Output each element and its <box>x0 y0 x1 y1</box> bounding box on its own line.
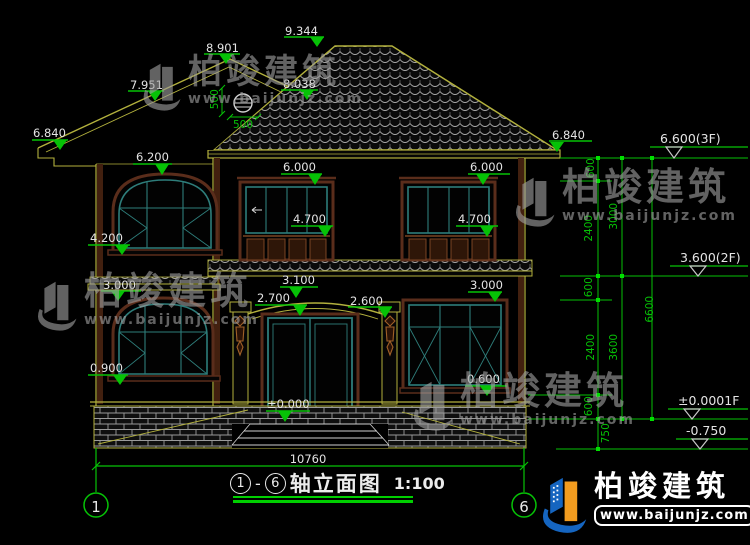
pent-roof-band <box>208 260 532 276</box>
dim-2400-b: 2400 <box>586 327 597 367</box>
company-url: www.baijunjz.com <box>594 505 750 526</box>
title-dash: - <box>255 474 261 493</box>
elev-4700-right: 4.700 <box>458 214 491 226</box>
elev-4700-left: 4.700 <box>293 214 326 226</box>
elev-7951: 7.951 <box>130 80 163 92</box>
entry-steps <box>232 424 389 448</box>
title-axis-start: 1 <box>230 473 251 494</box>
elev-3100: 3.100 <box>282 275 315 287</box>
dim-500-vertical: 500 <box>210 79 221 119</box>
datum-3f: 6.600(3F) <box>660 133 721 146</box>
datum-2f: 3.600(2F) <box>680 252 741 265</box>
window-2f-arched <box>108 174 222 255</box>
elev-3000-right: 3.000 <box>470 280 503 292</box>
title-scale: 1:100 <box>394 474 445 493</box>
company-name: 柏竣建筑 <box>594 472 750 501</box>
dim-600-a: 600 <box>586 148 597 188</box>
elevation-drawing-canvas: 9.344 8.901 7.951 8.038 6.840 6.840 6.20… <box>0 0 750 545</box>
elev-9344: 9.344 <box>285 26 318 38</box>
elev-6000-left: 6.000 <box>283 162 316 174</box>
elev-6840-right: 6.840 <box>552 130 585 142</box>
axis-bubble-1: 1 <box>84 498 108 516</box>
elev-2700: 2.700 <box>257 293 290 305</box>
elev-6200: 6.200 <box>136 152 169 164</box>
dim-total-width: 10760 <box>286 454 330 466</box>
elev-0900: 0.900 <box>90 363 123 375</box>
datum-ground: -0.750 <box>686 425 726 438</box>
title-text: 轴立面图 <box>290 468 382 498</box>
elev-2600: 2.600 <box>350 296 383 308</box>
dim-750: 750 <box>601 413 612 453</box>
elev-0600: 0.600 <box>467 374 500 386</box>
company-logo-icon <box>534 472 588 536</box>
title-underline-1 <box>233 496 413 498</box>
elev-8038: 8.038 <box>283 79 316 91</box>
drawing-title: 1 - 6 轴立面图 1:100 <box>230 468 445 498</box>
window-1f-arched <box>108 298 220 381</box>
dim-600-c: 600 <box>584 386 595 426</box>
dim-3600: 3600 <box>609 327 620 367</box>
dim-3000: 3000 <box>609 196 620 236</box>
dim-500-horizontal: 500 <box>233 120 253 131</box>
title-axis-end: 6 <box>265 473 286 494</box>
elev-4200: 4.200 <box>90 233 123 245</box>
footer-logo-block: 柏竣建筑 www.baijunjz.com <box>534 472 750 536</box>
elev-8901: 8.901 <box>206 43 239 55</box>
axis-bubble-6: 6 <box>512 498 536 516</box>
elev-6000-right: 6.000 <box>470 162 503 174</box>
elev-0000: ±0.000 <box>267 399 310 411</box>
title-underline-2 <box>233 500 413 503</box>
dim-600-b: 600 <box>584 267 595 307</box>
datum-1f: ±0.0001F <box>678 395 739 408</box>
elev-6840-left: 6.840 <box>33 128 66 140</box>
drawing-linework <box>0 0 750 545</box>
dim-2400-a: 2400 <box>584 208 595 248</box>
dim-6600: 6600 <box>645 289 656 329</box>
elev-3000-left: 3.000 <box>103 280 136 292</box>
